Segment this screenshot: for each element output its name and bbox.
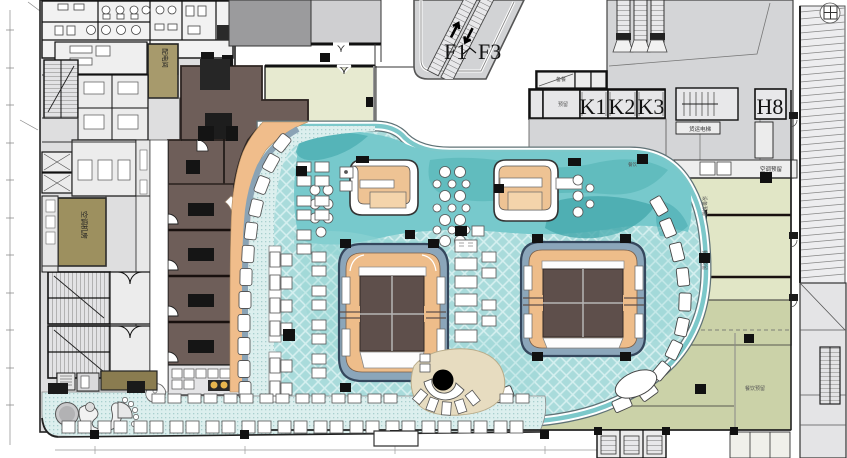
svg-text:H8: H8 <box>757 94 784 119</box>
svg-text:F3: F3 <box>478 39 501 64</box>
svg-text:K2: K2 <box>609 94 636 119</box>
svg-text:备餐: 备餐 <box>556 76 566 83</box>
svg-text:空调预留: 空调预留 <box>760 165 783 173</box>
svg-text:配电间: 配电间 <box>161 48 170 68</box>
svg-text:空调机房: 空调机房 <box>80 211 89 239</box>
svg-text:设备预留: 设备预留 <box>701 196 708 216</box>
svg-text:K1: K1 <box>580 94 607 119</box>
svg-text:F1: F1 <box>444 39 467 64</box>
svg-text:货运电梯: 货运电梯 <box>689 125 712 133</box>
svg-text:K3: K3 <box>638 94 665 119</box>
svg-text:预留: 预留 <box>558 101 568 108</box>
svg-text:餐饮预留: 餐饮预留 <box>745 385 765 392</box>
svg-text:餐饮: 餐饮 <box>628 161 637 168</box>
